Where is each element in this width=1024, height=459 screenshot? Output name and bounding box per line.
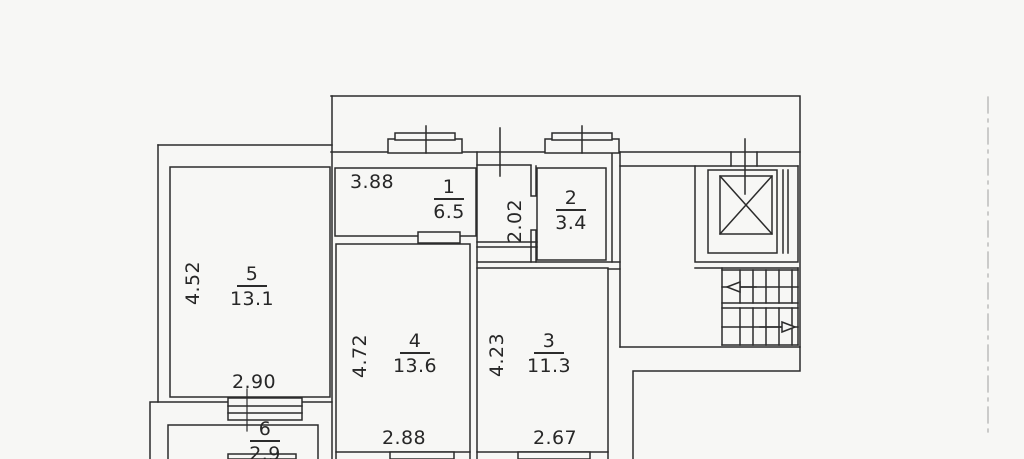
dim-room3-height: 4.23 <box>486 328 508 382</box>
room-4-label: 4 13.6 <box>389 331 441 376</box>
room-number: 5 <box>237 264 268 287</box>
dim-room4-width: 2.88 <box>377 427 431 449</box>
dim-room5-width: 2.90 <box>227 371 281 393</box>
room-number: 1 <box>434 177 465 200</box>
room-1-label: 1 6.5 <box>423 177 475 222</box>
room-number: 3 <box>534 331 565 354</box>
room-number: 2 <box>556 188 587 211</box>
room-2-label: 2 3.4 <box>545 188 597 233</box>
room-area: 13.1 <box>226 287 278 309</box>
room-5-label: 5 13.1 <box>226 264 278 309</box>
room-3-label: 3 11.3 <box>523 331 575 376</box>
windows <box>228 126 619 459</box>
dim-room5-height: 4.52 <box>182 256 204 310</box>
floor-plan-page: 1 6.5 2 3.4 3 11.3 4 13.6 5 13.1 6 2.9 3… <box>0 0 1024 459</box>
room-number: 6 <box>250 419 281 442</box>
dim-room1-width: 3.88 <box>345 171 399 193</box>
room-area: 6.5 <box>423 200 475 222</box>
room-area: 3.4 <box>545 211 597 233</box>
room-6-label: 6 2.9 <box>239 419 291 459</box>
stair-arrows <box>727 282 795 332</box>
dim-room4-height: 4.72 <box>349 329 371 383</box>
room-number: 4 <box>400 331 431 354</box>
room-area: 13.6 <box>389 354 441 376</box>
dim-room3-width: 2.67 <box>528 427 582 449</box>
room-area: 2.9 <box>239 442 291 459</box>
balcony-window-icon <box>228 398 302 420</box>
door-sill <box>418 232 460 243</box>
elevator <box>695 139 798 262</box>
staircase <box>695 268 798 345</box>
window-icon <box>388 139 462 153</box>
room-area: 11.3 <box>523 354 575 376</box>
dim-hall-height: 2.02 <box>504 194 526 248</box>
